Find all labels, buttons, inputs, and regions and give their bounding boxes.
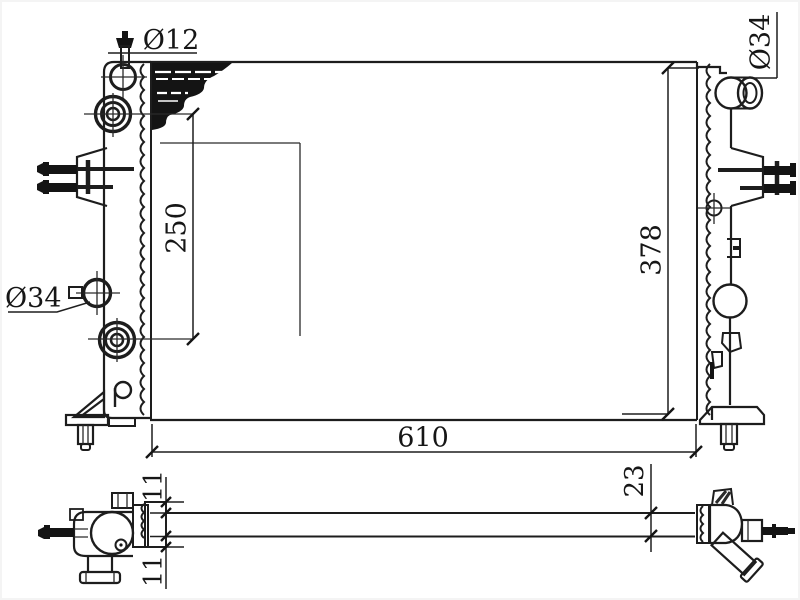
- left-mounting-bracket: [37, 148, 134, 206]
- elbow-body: [710, 505, 742, 543]
- right-pin-upper: [764, 166, 792, 175]
- right-flange: [742, 520, 762, 541]
- radiator-technical-drawing: Ø12 Ø34 250 378 610 Ø34: [0, 0, 800, 600]
- retainer-clip: [727, 239, 740, 257]
- right-tank-edge-lower: [730, 206, 731, 405]
- left-side-port: [69, 271, 120, 315]
- drain-plug: [115, 382, 131, 407]
- front-view: Ø12 Ø34 250 378 610 Ø34: [5, 12, 796, 458]
- dimensions-front: Ø12 Ø34 250 378 610 Ø34: [5, 12, 777, 458]
- right-tank: [697, 62, 796, 450]
- upper-stub: [112, 493, 133, 508]
- right-tank-boss: [714, 285, 747, 318]
- right-crimp-edge: [707, 64, 711, 415]
- dim-label-11-top: 11: [139, 470, 168, 502]
- right-bottom-pin: [721, 424, 737, 444]
- bracket-rods: [718, 170, 764, 188]
- left-tank-foot: [109, 418, 135, 426]
- right-top-pipe: [716, 78, 763, 109]
- left-crimp-edge: [141, 64, 145, 415]
- dim-label-378: 378: [637, 224, 668, 276]
- dim-label-610: 610: [397, 423, 449, 454]
- dim-label-d34-right: Ø34: [746, 14, 777, 71]
- left-pin-lower: [47, 183, 77, 192]
- core-slab-edges: [166, 513, 695, 537]
- dim-label-23: 23: [620, 464, 650, 497]
- right-port-assembly: [697, 489, 795, 582]
- left-pin-upper: [47, 165, 77, 174]
- left-bottom-bracket: [66, 392, 108, 450]
- lower-tabs: [710, 333, 741, 379]
- radiator-core: [141, 62, 711, 420]
- right-pin-lower: [764, 184, 792, 193]
- dim-label-d12: Ø12: [143, 25, 200, 56]
- sensor-boss: [698, 193, 730, 224]
- bracket-rods: [77, 169, 134, 187]
- drawing-canvas: Ø12 Ø34 250 378 610 Ø34: [0, 0, 800, 600]
- bottom-view: 11 11 23: [38, 464, 795, 589]
- left-end-crimp: [142, 504, 145, 538]
- left-port-assembly: [38, 493, 148, 583]
- right-mounting-bracket: [718, 148, 796, 206]
- left-bottom-pin: [78, 425, 93, 444]
- right-tank-top: [697, 62, 727, 73]
- dim-label-250: 250: [162, 202, 193, 254]
- down-pipe: [88, 556, 112, 572]
- dim-label-d34-left: Ø34: [5, 283, 62, 314]
- right-end-crimp: [701, 506, 704, 542]
- dim-label-11-bottom: 11: [139, 555, 168, 587]
- left-spigot: [48, 528, 74, 537]
- dimensions-bottom: 11 11 23: [139, 464, 658, 589]
